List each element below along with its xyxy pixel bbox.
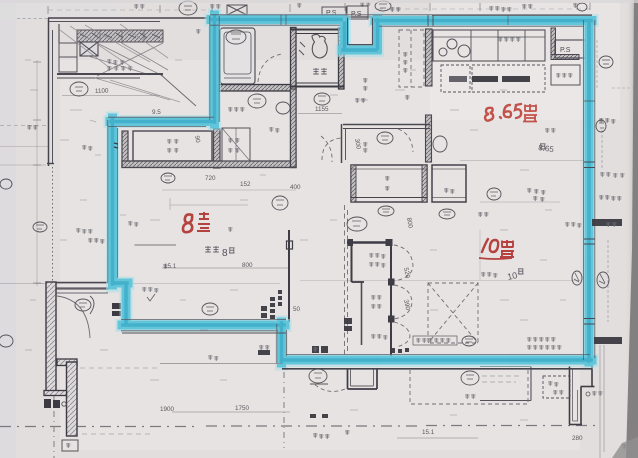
svg-text:50: 50 [293, 306, 301, 313]
svg-text:15.1: 15.1 [422, 429, 435, 436]
svg-text:10: 10 [506, 270, 518, 282]
svg-text:152: 152 [240, 181, 251, 188]
svg-text:P.S: P.S [560, 47, 571, 54]
svg-text:1100: 1100 [95, 88, 109, 95]
svg-text:800: 800 [242, 262, 253, 269]
svg-text:9.5: 9.5 [152, 109, 161, 116]
svg-text:1155: 1155 [315, 106, 329, 113]
svg-text:280: 280 [572, 435, 583, 442]
svg-text:720: 720 [205, 175, 216, 182]
svg-text:400: 400 [290, 184, 301, 191]
svg-text:15.1: 15.1 [164, 263, 177, 270]
svg-text:8: 8 [222, 248, 228, 259]
svg-text:1750: 1750 [235, 405, 250, 412]
svg-text:1900: 1900 [160, 406, 175, 413]
